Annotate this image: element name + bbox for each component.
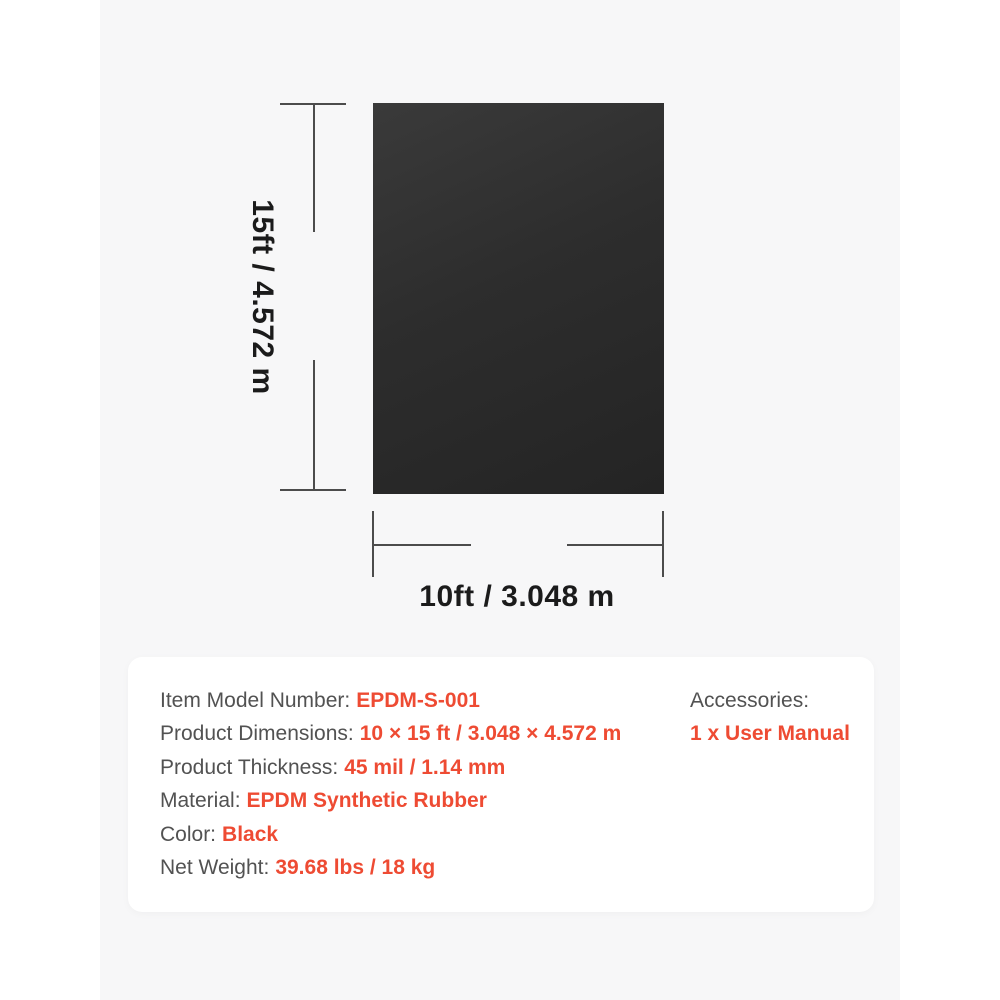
spec-value: EPDM-S-001	[356, 689, 480, 712]
product-diagram-stage: 15ft / 4.572 m 10ft / 3.048 m Item Model…	[100, 0, 900, 1000]
spec-label: Net Weight:	[160, 856, 269, 879]
spec-label: Product Thickness:	[160, 756, 338, 779]
spec-value: Black	[222, 823, 278, 846]
spec-label: Product Dimensions:	[160, 722, 354, 745]
height-dim-line-lower	[313, 360, 315, 490]
spec-row-model-number: Item Model Number:EPDM-S-001	[160, 684, 621, 717]
spec-value: 45 mil / 1.14 mm	[344, 756, 505, 779]
rubber-sheet	[373, 103, 664, 494]
height-dim-line-upper	[313, 104, 315, 232]
spec-value: 10 × 15 ft / 3.048 × 4.572 m	[360, 722, 622, 745]
spec-label: Color:	[160, 823, 216, 846]
width-dim-line-right	[567, 544, 664, 546]
spec-value: 39.68 lbs / 18 kg	[275, 856, 435, 879]
spec-row-thickness: Product Thickness:45 mil / 1.14 mm	[160, 751, 621, 784]
spec-row-accessories-value: 1 x User Manual	[690, 717, 850, 750]
width-dim-line-left	[373, 544, 471, 546]
height-dim-bottom-cap	[280, 489, 346, 491]
spec-row-accessories-label: Accessories:	[690, 684, 850, 717]
spec-row-net-weight: Net Weight:39.68 lbs / 18 kg	[160, 851, 621, 884]
spec-row-color: Color:Black	[160, 818, 621, 851]
specs-panel: Item Model Number:EPDM-S-001 Product Dim…	[128, 657, 874, 912]
specs-column-left: Item Model Number:EPDM-S-001 Product Dim…	[160, 684, 621, 884]
accessories-label: Accessories:	[690, 689, 809, 712]
accessories-value: 1 x User Manual	[690, 722, 850, 745]
spec-value: EPDM Synthetic Rubber	[247, 789, 487, 812]
height-dimension-label: 15ft / 4.572 m	[245, 199, 279, 394]
width-dimension-label: 10ft / 3.048 m	[419, 580, 614, 614]
specs-column-right: Accessories: 1 x User Manual	[690, 684, 850, 751]
product-image-canvas: 15ft / 4.572 m 10ft / 3.048 m Item Model…	[0, 0, 1000, 1000]
spec-label: Item Model Number:	[160, 689, 350, 712]
width-dim-right-cap	[662, 511, 664, 577]
spec-label: Material:	[160, 789, 241, 812]
spec-row-dimensions: Product Dimensions:10 × 15 ft / 3.048 × …	[160, 717, 621, 750]
spec-row-material: Material:EPDM Synthetic Rubber	[160, 784, 621, 817]
